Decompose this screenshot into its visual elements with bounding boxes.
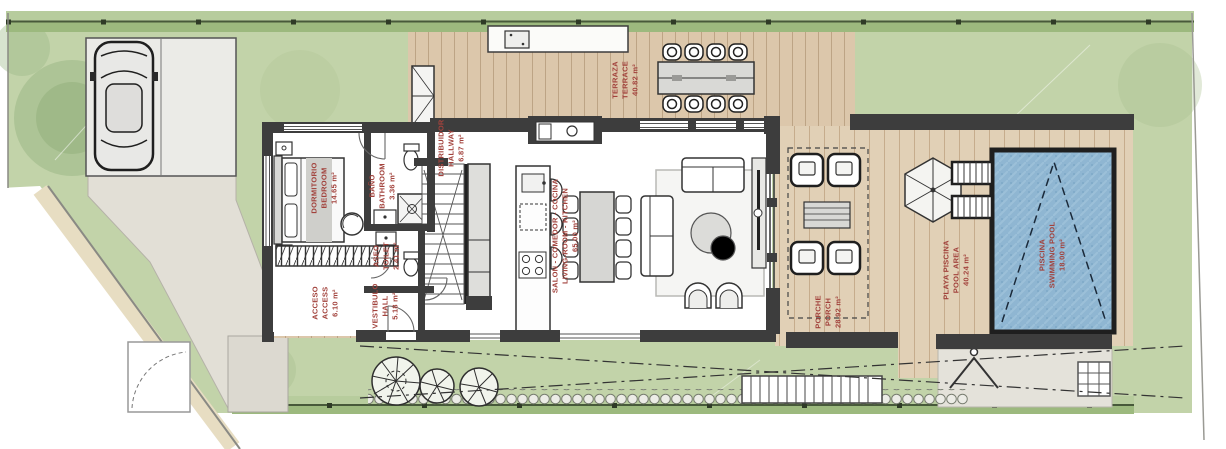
- tv-unit: [752, 158, 766, 268]
- bar-stool: [551, 179, 562, 269]
- sofa: [641, 196, 673, 276]
- bbq-grill: [505, 31, 529, 48]
- trellis: [742, 376, 882, 403]
- entrance-gate-pad: [128, 342, 190, 412]
- sun-lounger: [952, 162, 992, 184]
- floor-plan-canvas: [0, 0, 1226, 449]
- cooktop: [519, 252, 546, 278]
- louvered-screen: [276, 246, 398, 266]
- terrace-deck: [408, 32, 855, 126]
- slat-coffee-table: [804, 202, 850, 228]
- double-bed: [274, 156, 344, 244]
- drain-grate: [1078, 362, 1110, 396]
- sofa: [682, 158, 744, 192]
- bbq-counter: [488, 26, 628, 52]
- sun-lounger: [952, 196, 992, 218]
- swivel-chair: [341, 213, 363, 235]
- nightstand: [276, 142, 292, 155]
- kitchen-sink: [522, 174, 544, 192]
- swimming-pool: [992, 150, 1114, 332]
- understair-cabinet: [466, 164, 492, 310]
- wc: [404, 258, 418, 276]
- car-mirror: [90, 72, 96, 81]
- wall-niche: [528, 116, 602, 144]
- car: [90, 42, 158, 170]
- sketch-tree: [460, 368, 498, 406]
- floor-plan: TERRAZA TERRACE 40.82 m² DORMITORIO BEDR…: [0, 0, 1226, 449]
- sketch-tree: [372, 357, 420, 405]
- terrace-storage-cabinet: [412, 66, 434, 126]
- car-mirror: [152, 72, 158, 81]
- dining-table: [580, 192, 614, 282]
- sketch-tree: [420, 369, 454, 403]
- side-table: [711, 236, 735, 260]
- living-room-furniture: [641, 158, 766, 308]
